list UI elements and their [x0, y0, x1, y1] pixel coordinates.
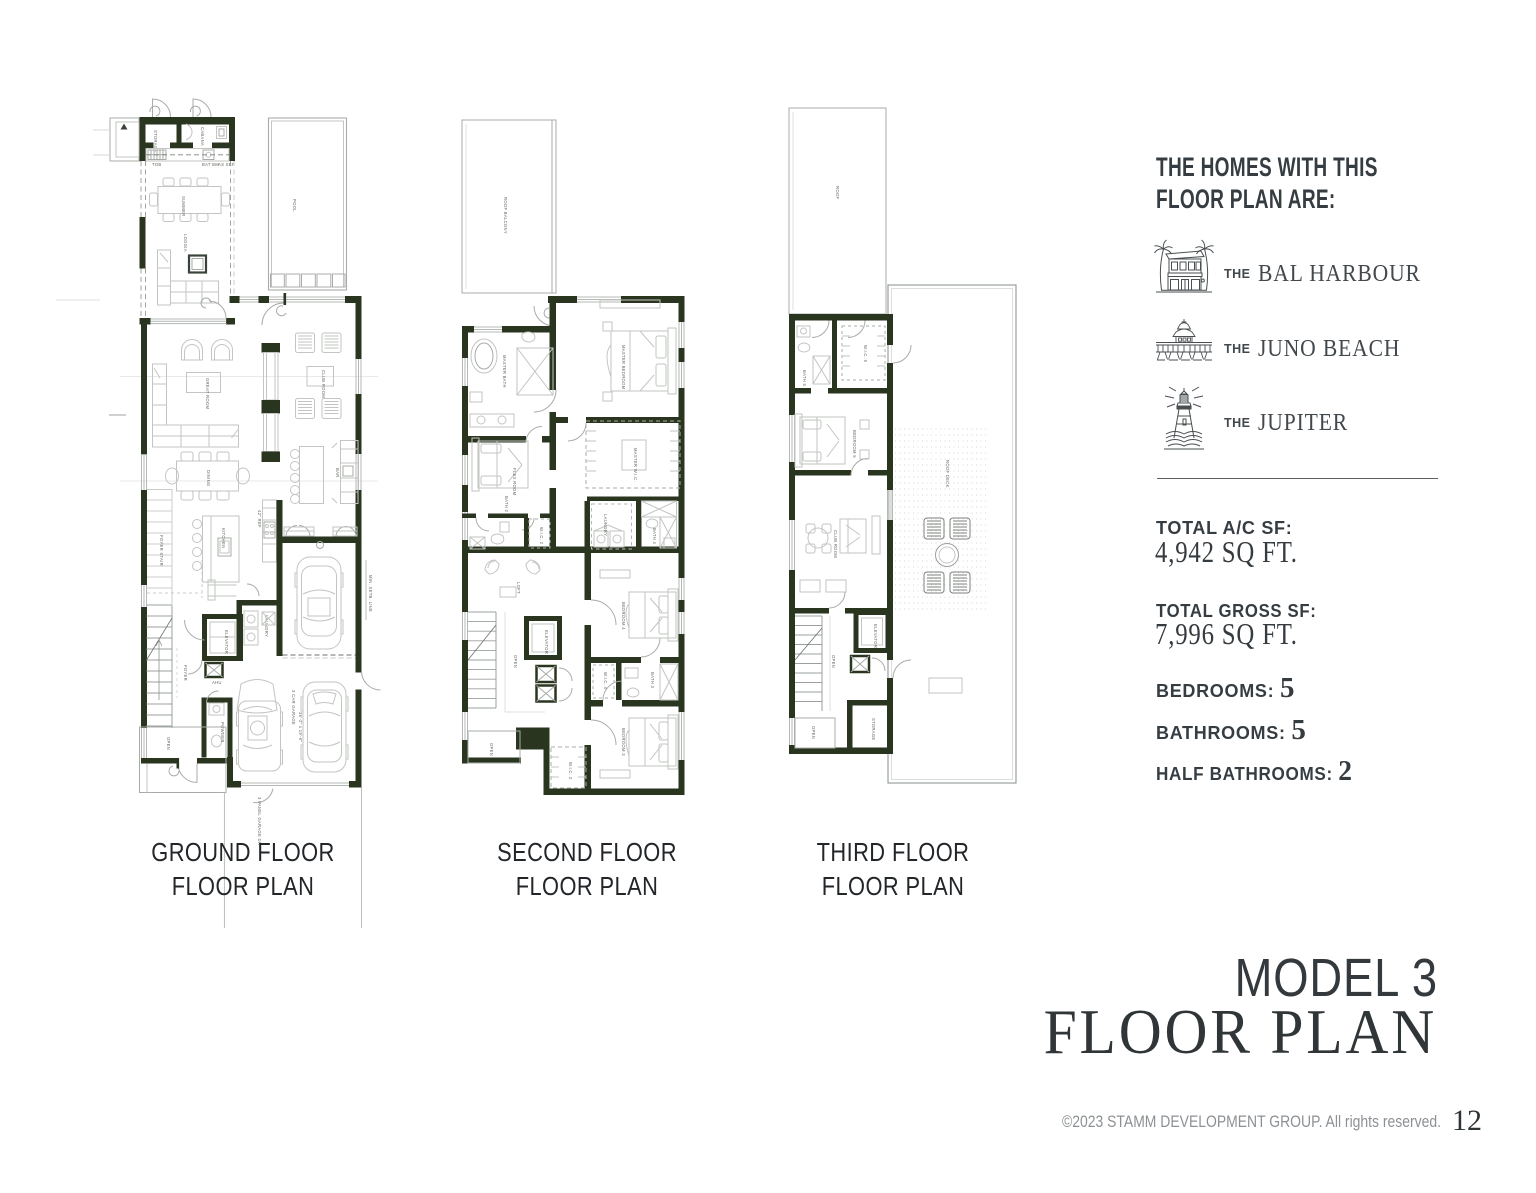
- svg-text:CLUB ROOM: CLUB ROOM: [833, 530, 838, 558]
- svg-text:ROOF BALCONY: ROOF BALCONY: [503, 197, 508, 234]
- svg-text:LOGGIA: LOGGIA: [183, 234, 188, 252]
- svg-text:DINING: DINING: [206, 470, 211, 486]
- svg-text:BATH 4: BATH 4: [652, 528, 657, 545]
- svg-text:STORAGE: STORAGE: [871, 718, 876, 741]
- svg-text:BATH 5: BATH 5: [802, 370, 807, 387]
- svg-text:KITCHEN: KITCHEN: [221, 528, 226, 548]
- svg-text:42" REF: 42" REF: [257, 510, 262, 528]
- svg-text:POWDER: POWDER: [220, 722, 225, 743]
- svg-text:W.I.C. 4: W.I.C. 4: [603, 672, 608, 690]
- svg-text:MASTER BATH: MASTER BATH: [502, 355, 507, 388]
- svg-text:BATH 3: BATH 3: [650, 672, 655, 689]
- svg-text:OPEN: OPEN: [489, 743, 494, 756]
- svg-text:ROOF: ROOF: [835, 186, 840, 199]
- svg-text:ROOF DECK: ROOF DECK: [945, 460, 950, 488]
- svg-text:BAT BM: BAT BM: [202, 162, 219, 167]
- svg-text:MASTER W.I.C.: MASTER W.I.C.: [633, 448, 638, 482]
- svg-text:ELEVATOR: ELEVATOR: [544, 630, 549, 654]
- svg-text:ELEVATOR: ELEVATOR: [873, 624, 878, 648]
- svg-text:OPEN: OPEN: [166, 737, 171, 750]
- svg-text:W.I.C. 3: W.I.C. 3: [568, 762, 573, 780]
- svg-text:3 CAR GARAGE: 3 CAR GARAGE: [291, 690, 296, 725]
- svg-text:BAR: BAR: [335, 468, 340, 478]
- svg-text:BEDROOM 4: BEDROOM 4: [621, 602, 626, 630]
- svg-text:CLUB ROOM: CLUB ROOM: [321, 370, 326, 398]
- svg-text:BEDROOM 3: BEDROOM 3: [621, 728, 626, 756]
- svg-text:POOL: POOL: [292, 199, 297, 212]
- svg-text:W.I.C. 5: W.I.C. 5: [863, 345, 868, 363]
- svg-text:OPEN: OPEN: [513, 655, 518, 668]
- svg-text:OPEN: OPEN: [831, 655, 836, 668]
- svg-text:W.I.C. 2: W.I.C. 2: [539, 527, 544, 545]
- svg-text:BEDROOM 5: BEDROOM 5: [852, 430, 857, 458]
- svg-text:LOFT: LOFT: [516, 582, 521, 594]
- svg-text:36'-2" x 19'-6": 36'-2" x 19'-6": [298, 712, 303, 742]
- svg-text:AHU: AHU: [212, 680, 222, 685]
- svg-text:FOYER STAIR: FOYER STAIR: [159, 535, 164, 566]
- svg-text:LAUNDRY: LAUNDRY: [603, 514, 608, 536]
- svg-text:MIN. SETB. LINE: MIN. SETB. LINE: [368, 575, 373, 612]
- svg-text:MASTER BEDROOM: MASTER BEDROOM: [621, 345, 626, 390]
- svg-text:SUMMER: SUMMER: [181, 196, 186, 216]
- svg-text:STORAGE: STORAGE: [153, 130, 158, 153]
- svg-text:FOYER: FOYER: [183, 665, 188, 681]
- svg-text:ELEVATOR: ELEVATOR: [224, 630, 229, 654]
- svg-text:TOB: TOB: [152, 162, 161, 167]
- svg-text:GREAT ROOM: GREAT ROOM: [205, 378, 210, 409]
- svg-text:AS SEP: AS SEP: [218, 162, 235, 167]
- svg-text:FLEX ROOM: FLEX ROOM: [512, 468, 517, 496]
- svg-text:CABANA: CABANA: [200, 127, 205, 146]
- svg-text:OPEN: OPEN: [811, 726, 816, 739]
- svg-text:BATH 2: BATH 2: [504, 496, 509, 513]
